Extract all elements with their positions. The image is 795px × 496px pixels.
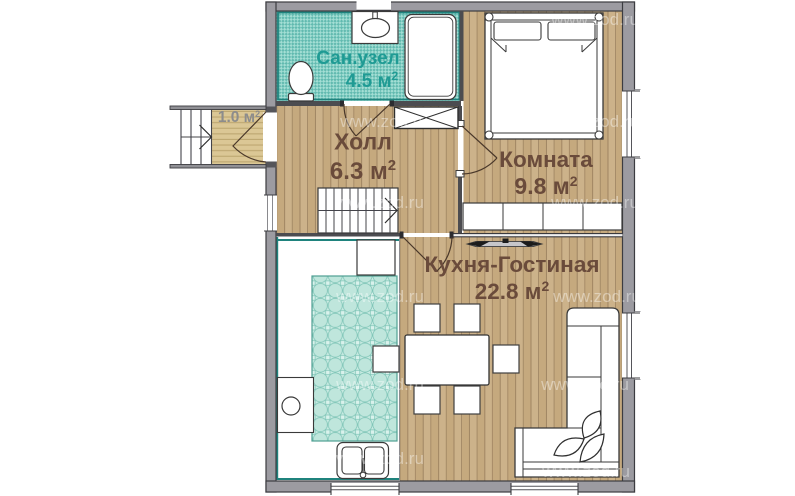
svg-text:www.zod.ru: www.zod.ru	[335, 193, 424, 212]
svg-text:www.zod.ru: www.zod.ru	[550, 193, 639, 212]
svg-text:www.zod.ru: www.zod.ru	[550, 10, 639, 29]
svg-text:www.zod.ru: www.zod.ru	[552, 287, 641, 306]
svg-text:www.zod.ru: www.zod.ru	[335, 375, 424, 394]
svg-text:www.zod.ru: www.zod.ru	[339, 112, 428, 131]
svg-text:www.zod.ru: www.zod.ru	[335, 287, 424, 306]
svg-text:Сан.узел: Сан.узел	[316, 48, 399, 69]
svg-text:www.zod.ru: www.zod.ru	[335, 449, 424, 468]
svg-text:Холл: Холл	[334, 129, 392, 155]
svg-text:6.3 м2: 6.3 м2	[330, 157, 396, 185]
svg-text:www.zod.ru: www.zod.ru	[540, 375, 629, 394]
svg-text:4.5 м2: 4.5 м2	[346, 69, 399, 92]
svg-text:Комната: Комната	[499, 147, 593, 172]
svg-text:Кухня-Гостиная: Кухня-Гостиная	[425, 252, 600, 277]
svg-text:www.zod.ru: www.zod.ru	[550, 112, 639, 131]
svg-text:22.8 м2: 22.8 м2	[475, 278, 550, 304]
svg-text:www.zod.ru: www.zod.ru	[541, 462, 630, 481]
svg-text:1.0 м2: 1.0 м2	[218, 109, 260, 126]
